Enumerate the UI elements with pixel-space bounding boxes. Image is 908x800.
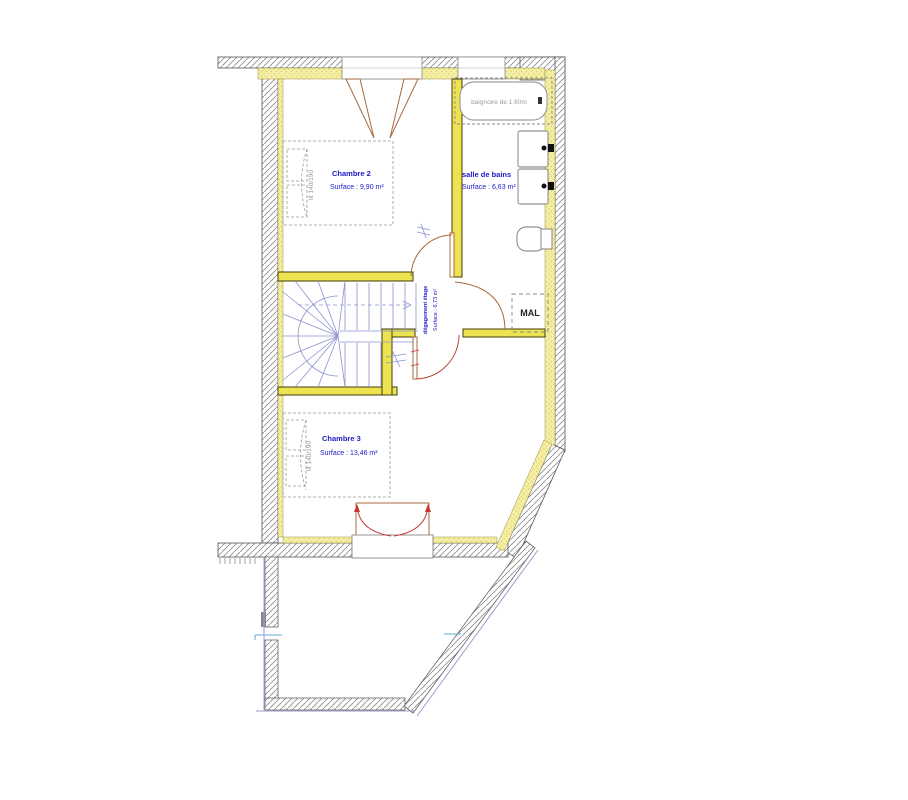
faucet-icon [542,146,547,151]
room-surface-chambre3: Surface : 13,46 m² [320,450,378,457]
insulation-lining [258,68,555,551]
tub-label-mark [538,97,542,104]
bed-chambre2 [283,141,393,225]
stair-walking-line [298,301,411,309]
partitions [278,79,545,395]
pillow [286,420,306,450]
stair-treads-lower [345,343,381,387]
stairs [283,224,430,387]
pillow [287,185,307,217]
french-door-chambre3 [352,503,433,558]
terrace [220,541,538,716]
wall-right [555,57,565,452]
partition-landing-chambre3 [463,329,545,337]
terrace-wall-diagonal [404,541,535,713]
room-label-landing: dégagement étage [423,286,429,334]
wall-left [262,68,278,543]
labels: Chambre 2 Surface : 9,90 m² salle de bai… [306,99,540,471]
lining-bottom-left [283,537,352,543]
toilet [517,227,552,251]
terrace-wall-bottom [265,698,405,710]
room-label-chambre2: Chambre 2 [332,169,371,178]
bathroom-fixtures [455,78,554,332]
partition-stairs-bottom [278,387,397,395]
terrace-wall-left-upper [265,557,278,627]
faucet-icon [542,184,547,189]
landing-break-symbol [417,224,430,238]
door-bathroom [455,282,505,329]
lining-left [278,79,283,537]
bed-label-chambre2: lit 140/190 [308,170,315,200]
stair-treads-upper [345,283,416,330]
pillow [287,149,307,181]
partition-chambre2-stairs [278,272,413,281]
room-surface-chambre2: Surface : 9,90 m² [330,184,384,191]
door-chambre3 [411,335,459,379]
door-chambre2 [411,233,454,277]
terrace-level-markers [255,634,461,640]
terrace-wall-left-lower [265,640,278,700]
window-leaf-left [346,79,374,138]
room-label-bathroom: salle de bains [462,170,511,179]
terrace-outer-lines [256,550,538,716]
lining-right [545,70,555,445]
door-sill [352,535,433,558]
bathtub-label: baignoire de 1,60m [471,99,527,106]
floor-plan: Chambre 2 Surface : 9,90 m² salle de bai… [0,0,908,800]
lining-bottom-right [433,537,497,543]
beds [283,141,393,497]
floor-plan-svg: Chambre 2 Surface : 9,90 m² salle de bai… [0,0,908,800]
window-bathroom [458,57,505,79]
window-chambre2 [342,57,422,138]
wall-bottom-left [218,543,352,557]
bed-label-chambre3: lit 140/190 [306,441,313,471]
stair-winder-lines [283,281,345,387]
room-label-chambre3: Chambre 3 [322,434,361,443]
washing-machine-label: MAL [520,308,540,318]
pillow [286,456,306,486]
room-surface-bathroom: Surface : 6,63 m² [462,184,516,191]
window-leaf-right [390,79,418,138]
room-surface-landing: Surface : 6,73 m² [433,289,439,331]
ground-ticks [220,558,255,564]
